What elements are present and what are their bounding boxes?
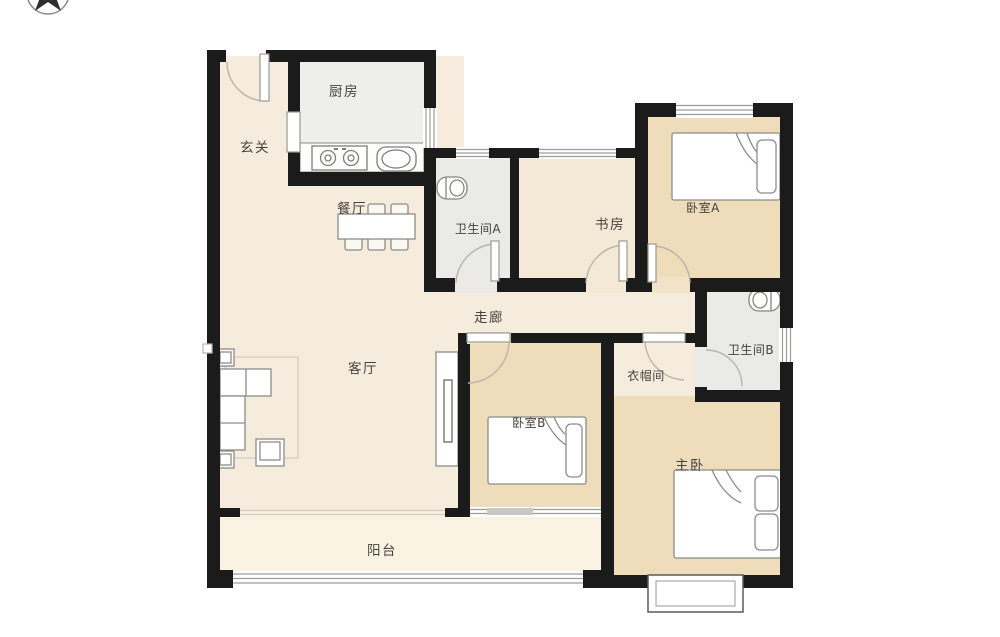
kitchen-east-window: [423, 108, 437, 148]
room-label-foyer: 玄关: [240, 139, 270, 156]
kitchen-door-leaf: [287, 112, 300, 152]
bedroom-b-south-window: [470, 507, 601, 517]
kitchen-counter-icon: [300, 143, 424, 172]
wall-break-marker: [203, 344, 212, 353]
room-label-bedroom-b: 卧室B: [512, 415, 546, 430]
bathroom-a-door-leaf: [491, 241, 499, 281]
entrance-door-leaf: [260, 54, 269, 101]
room-label-kitchen: 厨房: [329, 84, 359, 100]
study-door-leaf: [619, 241, 627, 281]
floor-balcony: [213, 510, 607, 580]
bathroom-a-window: [456, 147, 489, 159]
bedroom-b-door-leaf: [467, 333, 510, 342]
tv-stand-icon: [436, 352, 458, 466]
sliding-door-track: [487, 508, 533, 515]
room-label-living: 客厅: [348, 360, 378, 377]
bedroom-a-door-leaf: [648, 244, 656, 282]
room-label-balcony: 阳台: [367, 543, 397, 559]
bathroom-b-window: [779, 328, 794, 362]
bedroom-a-window: [676, 102, 753, 118]
room-label-bathroom-b: 卫生间B: [728, 343, 774, 357]
floor-plan-canvas: 玄关 厨房 餐厅 卫生间A 书房 卧室A 走廊 客厅 衣帽间 卫生间B 卧室B …: [0, 0, 1000, 637]
cloakroom-door-leaf: [643, 333, 685, 342]
balcony-window: [233, 571, 583, 587]
room-label-bedroom-a: 卧室A: [686, 200, 720, 215]
bay-window-icon: [648, 575, 743, 612]
study-window: [539, 147, 616, 159]
room-label-master: 主卧: [675, 458, 705, 474]
room-label-cloakroom: 衣帽间: [627, 368, 665, 383]
room-label-dining: 餐厅: [337, 201, 367, 217]
double-bed-icon: [674, 470, 783, 558]
compass-icon: [27, 0, 69, 14]
floor-bathroom-a: [430, 152, 516, 284]
floor-plan-svg: 玄关 厨房 餐厅 卫生间A 书房 卧室A 走廊 客厅 衣帽间 卫生间B 卧室B …: [0, 0, 1000, 637]
room-label-corridor: 走廊: [474, 309, 504, 326]
toilet-b-icon: [749, 289, 780, 311]
room-label-bathroom-a: 卫生间A: [455, 222, 502, 236]
bed-a-icon: [672, 133, 780, 200]
room-label-study: 书房: [595, 217, 625, 233]
toilet-a-icon: [437, 177, 467, 199]
